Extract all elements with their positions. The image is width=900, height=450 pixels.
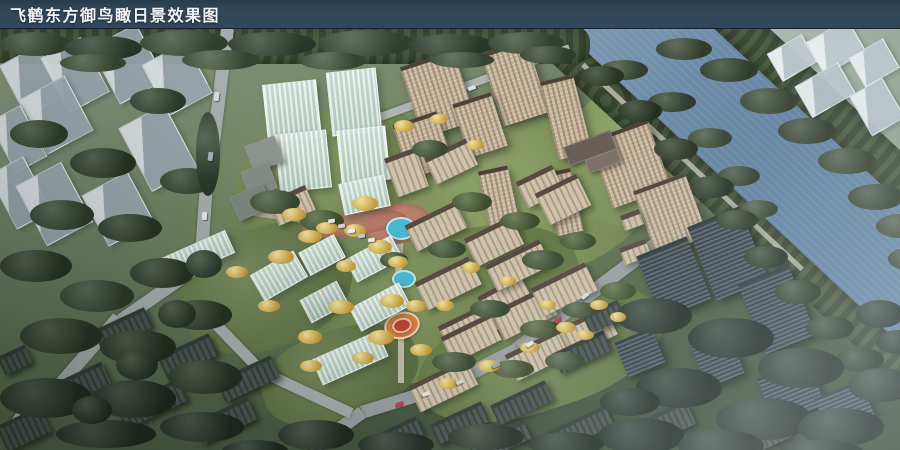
scene-tree [700,58,758,82]
scene-gold [316,222,338,234]
scene-tree [528,432,604,450]
scene-tree [778,118,836,144]
scene-gold [430,114,448,124]
scene-tree [72,396,112,424]
scene-path [398,335,404,383]
scene-gold [268,250,294,264]
scene-gold [368,330,394,345]
scene-gold [410,344,432,356]
scene-tree [580,66,624,86]
scene-gold [406,300,426,312]
scene-car [207,152,213,162]
scene-gold [226,266,248,278]
scene-tree [654,138,698,160]
scene-car [358,233,366,238]
scene-tree [0,250,72,282]
scene-tree [618,100,662,122]
scene-car [213,92,219,102]
scene-tree [448,424,524,450]
scene-gold [282,208,306,221]
scene-tree [56,420,156,448]
scene-tree [300,52,366,70]
scene-gold [436,300,454,311]
scene-tree [545,352,585,370]
scene-tree [688,318,774,358]
scene-tree [60,280,134,312]
scene-gold [388,256,408,268]
scene-tree [430,52,494,68]
title-bar: 飞鹤东方御鸟瞰日景效果图 [0,0,900,29]
scene-tree [30,200,94,230]
scene-tree [182,50,260,70]
scene-tree [98,214,162,242]
scene-tree [0,32,70,56]
scene-gold [590,300,608,310]
scene-gold [328,300,354,314]
scene-tree [160,412,244,442]
scene-tree [186,250,222,278]
scene-tree [412,140,448,158]
scene-tree [690,176,734,198]
scene-tree [598,418,684,450]
scene-gold [540,300,556,310]
scene-tree [740,88,798,114]
scene-gold [368,240,392,254]
scene-tree [10,120,68,148]
scene-tree [500,212,540,230]
scene-gold [394,120,414,132]
scene-tree [20,318,102,354]
scene-gold [466,140,484,150]
scene-tree [818,148,876,174]
scene-gold [500,276,516,286]
scene-gold [352,352,374,364]
aerial-rendering [0,0,900,450]
scene-tree [168,360,242,394]
scene-tree [522,250,564,270]
scene-tree [744,246,788,268]
scene-tree [848,184,900,210]
scene-car [202,212,208,220]
scene-tree [600,282,636,300]
scene-tree [600,388,660,416]
scene-tree [616,298,692,334]
scene-gold [576,330,594,340]
scene-tree [158,300,196,328]
scene-tree [130,88,186,114]
scene-gold [336,260,356,272]
scene-gold [298,330,322,344]
scene-darkslab [0,345,33,376]
scene-tree [116,350,158,380]
scene-tree [428,240,466,258]
scene-gold [352,196,378,211]
scene-tree [278,420,354,450]
scene-gold [300,360,322,372]
scene-tree [716,210,758,230]
scene-tree [452,192,492,212]
scene-tree [856,300,900,328]
scene-tree [520,46,576,64]
scene-tree [470,300,510,318]
scene-tree [560,232,596,250]
scene-gold [380,294,404,308]
scene-tree [130,258,194,288]
page-title: 飞鹤东方御鸟瞰日景效果图 [10,2,220,26]
scene-tree [70,148,136,178]
scene-car [468,85,477,91]
scene-tree [775,280,821,304]
scene-gold [462,262,480,273]
screenshot: 飞鹤东方御鸟瞰日景效果图 [0,0,900,450]
scene-tree [432,352,476,372]
scene-gold [438,378,458,389]
scene-tree [60,54,126,72]
scene-gold [258,300,280,312]
scene-gold [556,322,576,333]
scene-tree [222,440,288,450]
scene-tree [656,38,712,60]
scene-tree [758,348,844,388]
scene-tree [806,316,854,340]
scene-gold [610,312,626,322]
